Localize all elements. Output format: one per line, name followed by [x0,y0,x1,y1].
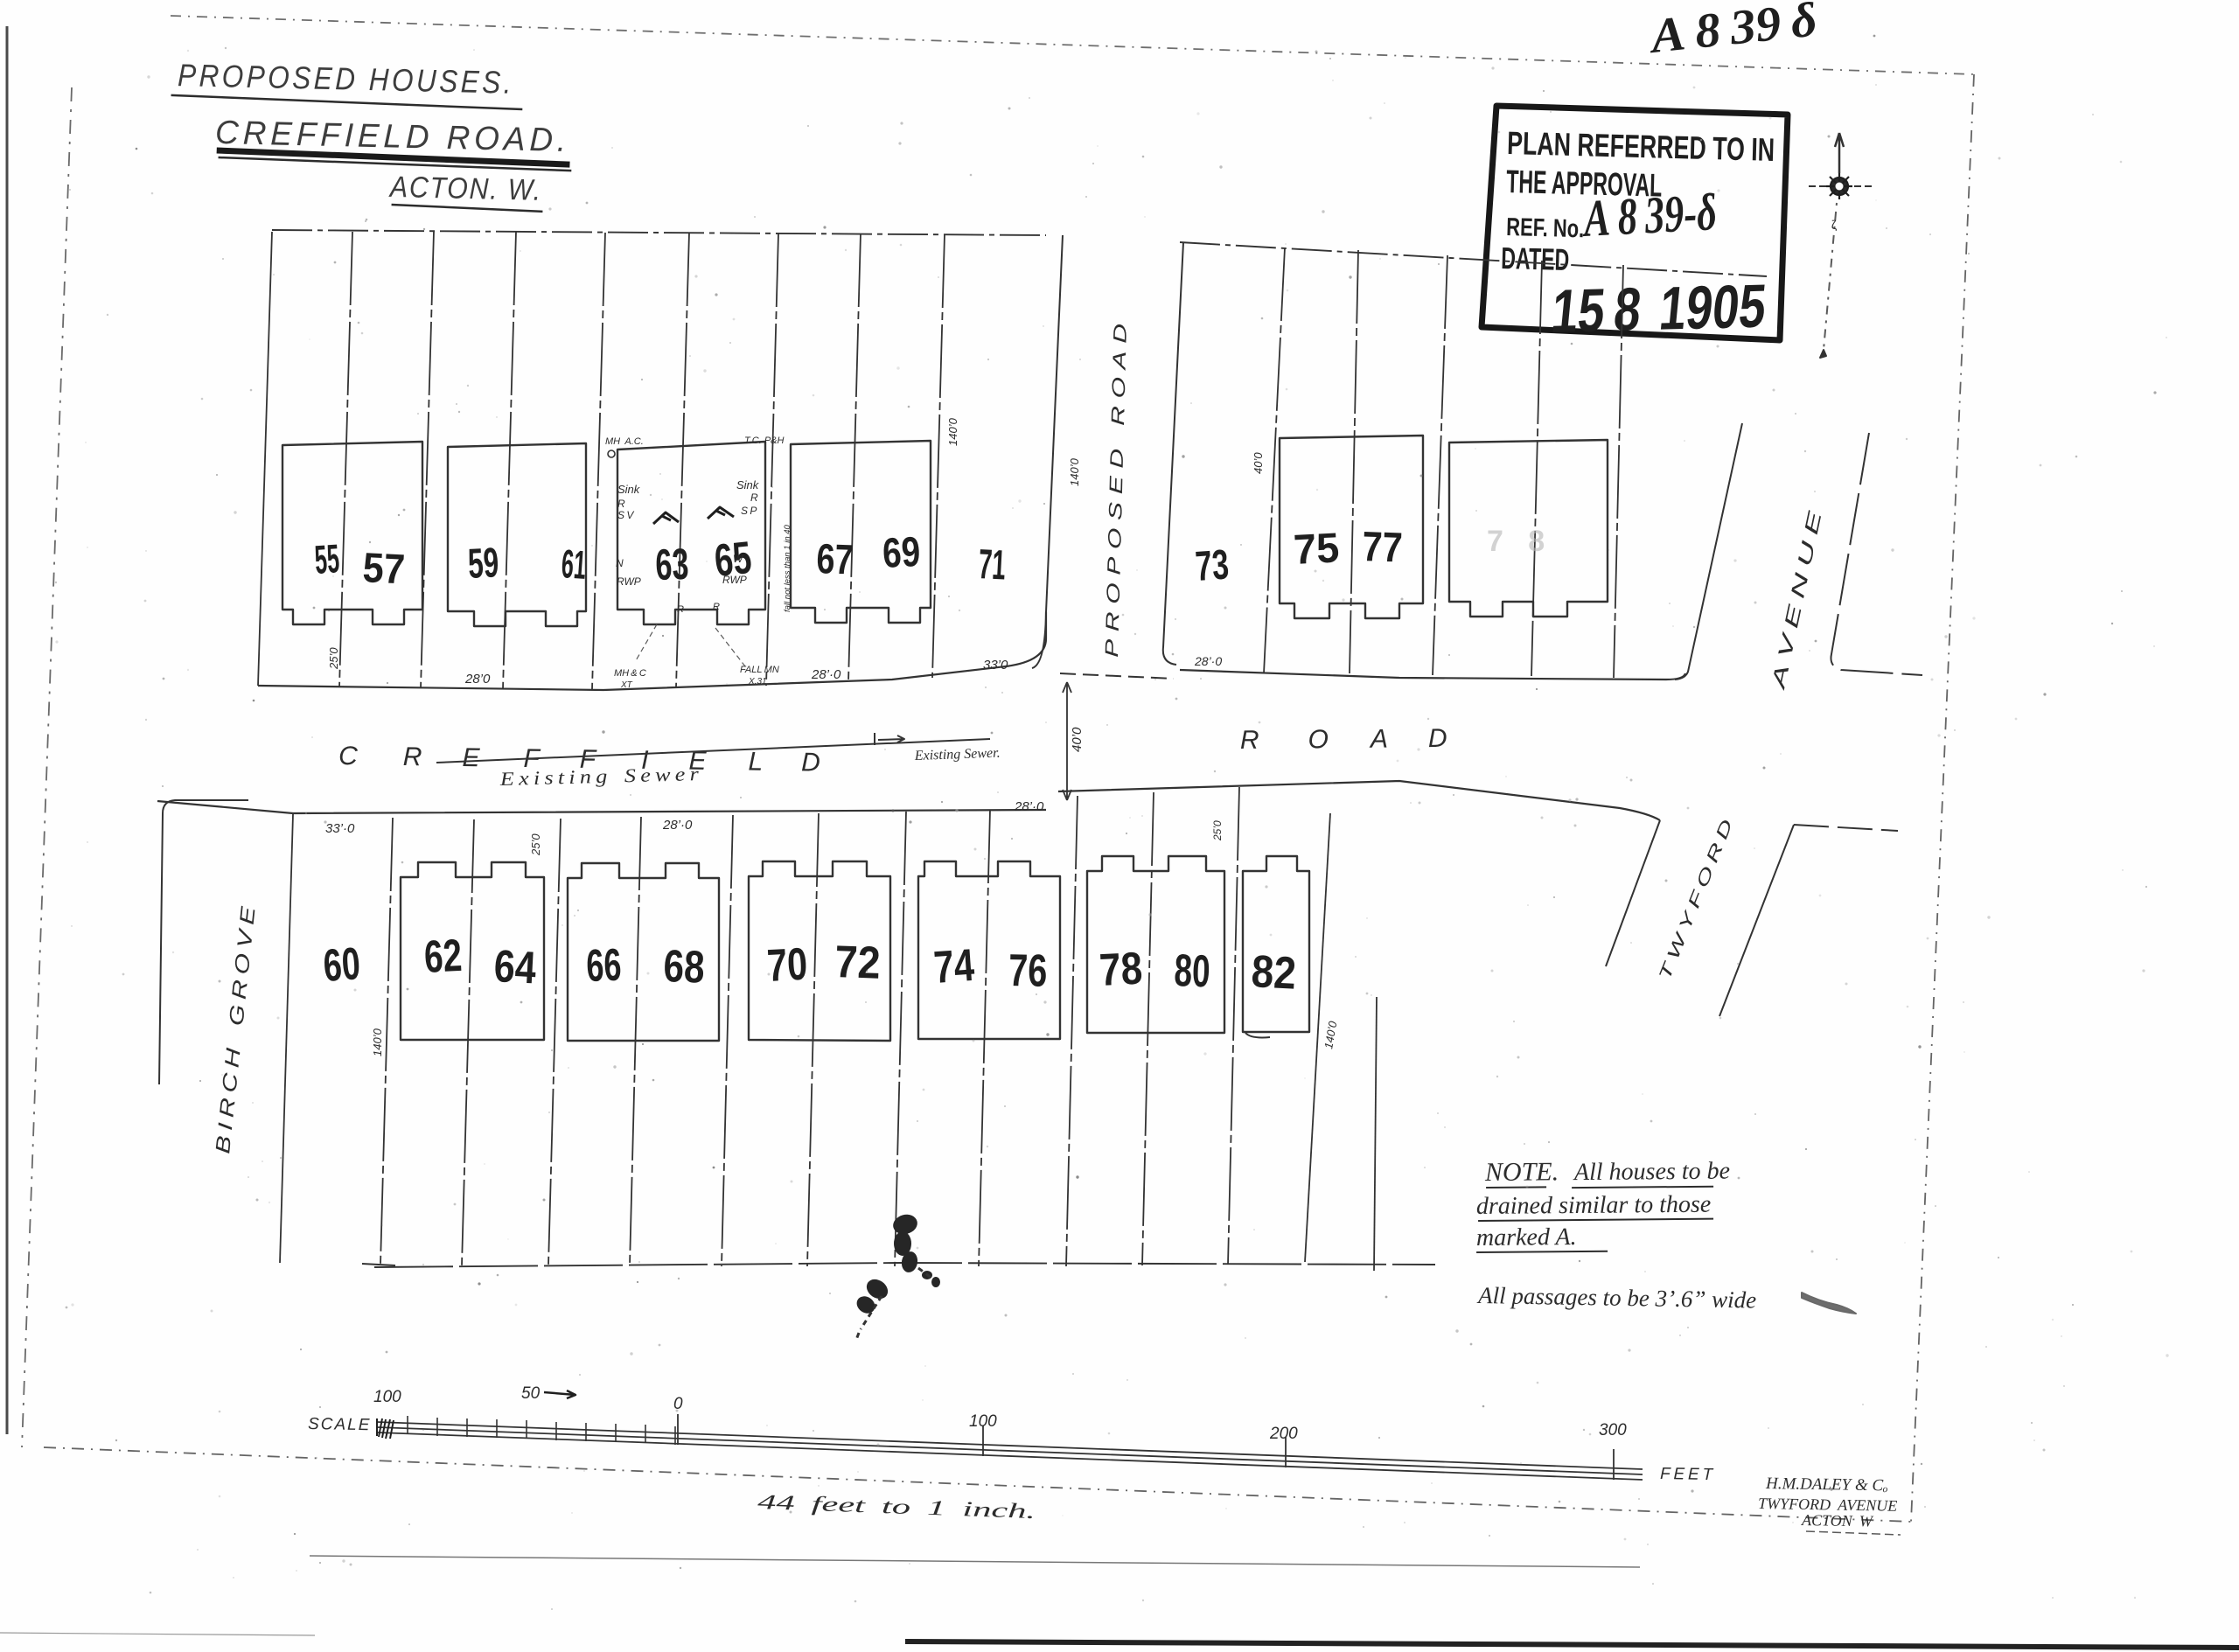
svg-text:REF. No.: REF. No. [1506,213,1585,243]
svg-text:X.31: X.31 [748,677,767,687]
svg-text:fall not less than 1 in 40: fall not less than 1 in 40 [783,524,792,612]
svg-text:W: W [733,553,744,565]
svg-text:60: 60 [322,938,362,992]
svg-text:marked A.: marked A. [1476,1223,1577,1251]
svg-text:FALL MN: FALL MN [740,665,779,675]
svg-text:78: 78 [1099,943,1144,995]
svg-text:71: 71 [977,541,1007,589]
svg-text:15 8 1905: 15 8 1905 [1549,271,1769,345]
svg-text:69: 69 [882,529,922,577]
svg-text:7 8: 7 8 [1487,525,1545,558]
svg-text:All houses to be: All houses to be [1573,1158,1730,1187]
svg-text:74: 74 [932,940,976,993]
svg-text:ACTON W: ACTON W [1801,1511,1874,1530]
svg-text:70: 70 [766,939,809,992]
svg-text:57: 57 [361,545,406,593]
svg-text:PROPOSED HOUSES.: PROPOSED HOUSES. [178,57,515,101]
svg-text:Sink: Sink [617,483,641,496]
svg-text:28’·0: 28’·0 [662,818,693,833]
svg-text:MH & C: MH & C [614,668,646,679]
svg-text:77: 77 [1362,524,1404,572]
svg-text:66: 66 [585,940,622,992]
svg-text:28’0: 28’0 [464,672,491,687]
svg-text:ACTON. W.: ACTON. W. [388,171,543,207]
svg-text:28’·0: 28’·0 [811,667,841,682]
svg-text:50: 50 [521,1384,541,1403]
svg-text:33’·0: 33’·0 [325,821,355,836]
svg-text:S P: S P [741,505,757,517]
svg-text:R: R [617,498,625,510]
svg-text:DATED: DATED [1501,241,1570,277]
svg-text:ζ: ζ [1831,218,1837,232]
svg-text:200: 200 [1269,1425,1298,1443]
svg-text:76: 76 [1008,945,1048,997]
svg-text:75: 75 [1293,525,1341,574]
svg-text:SCALE: SCALE [308,1415,372,1434]
svg-text:0: 0 [673,1395,683,1413]
svg-text:67: 67 [816,536,854,583]
svg-text:61: 61 [560,540,588,588]
svg-text:Sink: Sink [736,478,760,491]
svg-text:82: 82 [1250,946,1297,1000]
svg-text:140’0: 140’0 [371,1028,384,1056]
svg-text:33’0: 33’0 [983,658,1008,673]
svg-text:A 8 39-δ: A 8 39-δ [1580,183,1718,247]
svg-text:RWP: RWP [617,575,641,588]
svg-text:59: 59 [467,540,500,588]
svg-text:R: R [750,491,758,504]
svg-text:drained similar to those: drained similar to those [1476,1191,1712,1220]
svg-text:MH A.C.: MH A.C. [605,436,644,447]
svg-text:72: 72 [834,937,882,989]
svg-text:F E E T: F E E T [1660,1465,1714,1484]
svg-text:68: 68 [663,941,706,993]
svg-text:R: R [713,602,720,612]
svg-text:28’·0: 28’·0 [1014,799,1044,814]
svg-text:63: 63 [654,540,689,589]
svg-text:25’0: 25’0 [1211,820,1224,841]
svg-text:T.C. P&H: T.C. P&H [744,436,784,446]
svg-text:NOTE.: NOTE. [1484,1157,1559,1187]
svg-text:H.M.DALEY & Cₒ: H.M.DALEY & Cₒ [1765,1474,1888,1495]
svg-text:25’0: 25’0 [529,833,542,856]
svg-text:300: 300 [1599,1421,1627,1439]
svg-text:40’0: 40’0 [1070,727,1085,752]
svg-text:100: 100 [373,1388,401,1406]
svg-text:R: R [677,604,684,615]
svg-text:All passages to be 3’.6” wide: All passages to be 3’.6” wide [1476,1282,1756,1314]
svg-text:25’0: 25’0 [327,647,340,670]
svg-text:62: 62 [423,931,464,983]
svg-text:XT: XT [620,680,633,690]
svg-text:80: 80 [1174,945,1211,997]
svg-text:28’·0: 28’·0 [1194,654,1222,668]
svg-text:RWP: RWP [722,574,747,586]
svg-text:S V: S V [617,509,634,521]
svg-text:N: N [616,557,624,569]
svg-text:64: 64 [492,941,537,993]
svg-text:55: 55 [313,535,341,582]
svg-text:Existing Sewer.: Existing Sewer. [914,746,1001,763]
svg-text:100: 100 [969,1412,997,1431]
svg-text:40’0: 40’0 [1252,452,1265,474]
svg-text:PLAN REFERRED TO IN: PLAN REFERRED TO IN [1507,125,1775,168]
svg-text:73: 73 [1194,541,1231,590]
svg-text:140’0: 140’0 [946,417,959,446]
svg-text:140’0: 140’0 [1068,457,1081,486]
